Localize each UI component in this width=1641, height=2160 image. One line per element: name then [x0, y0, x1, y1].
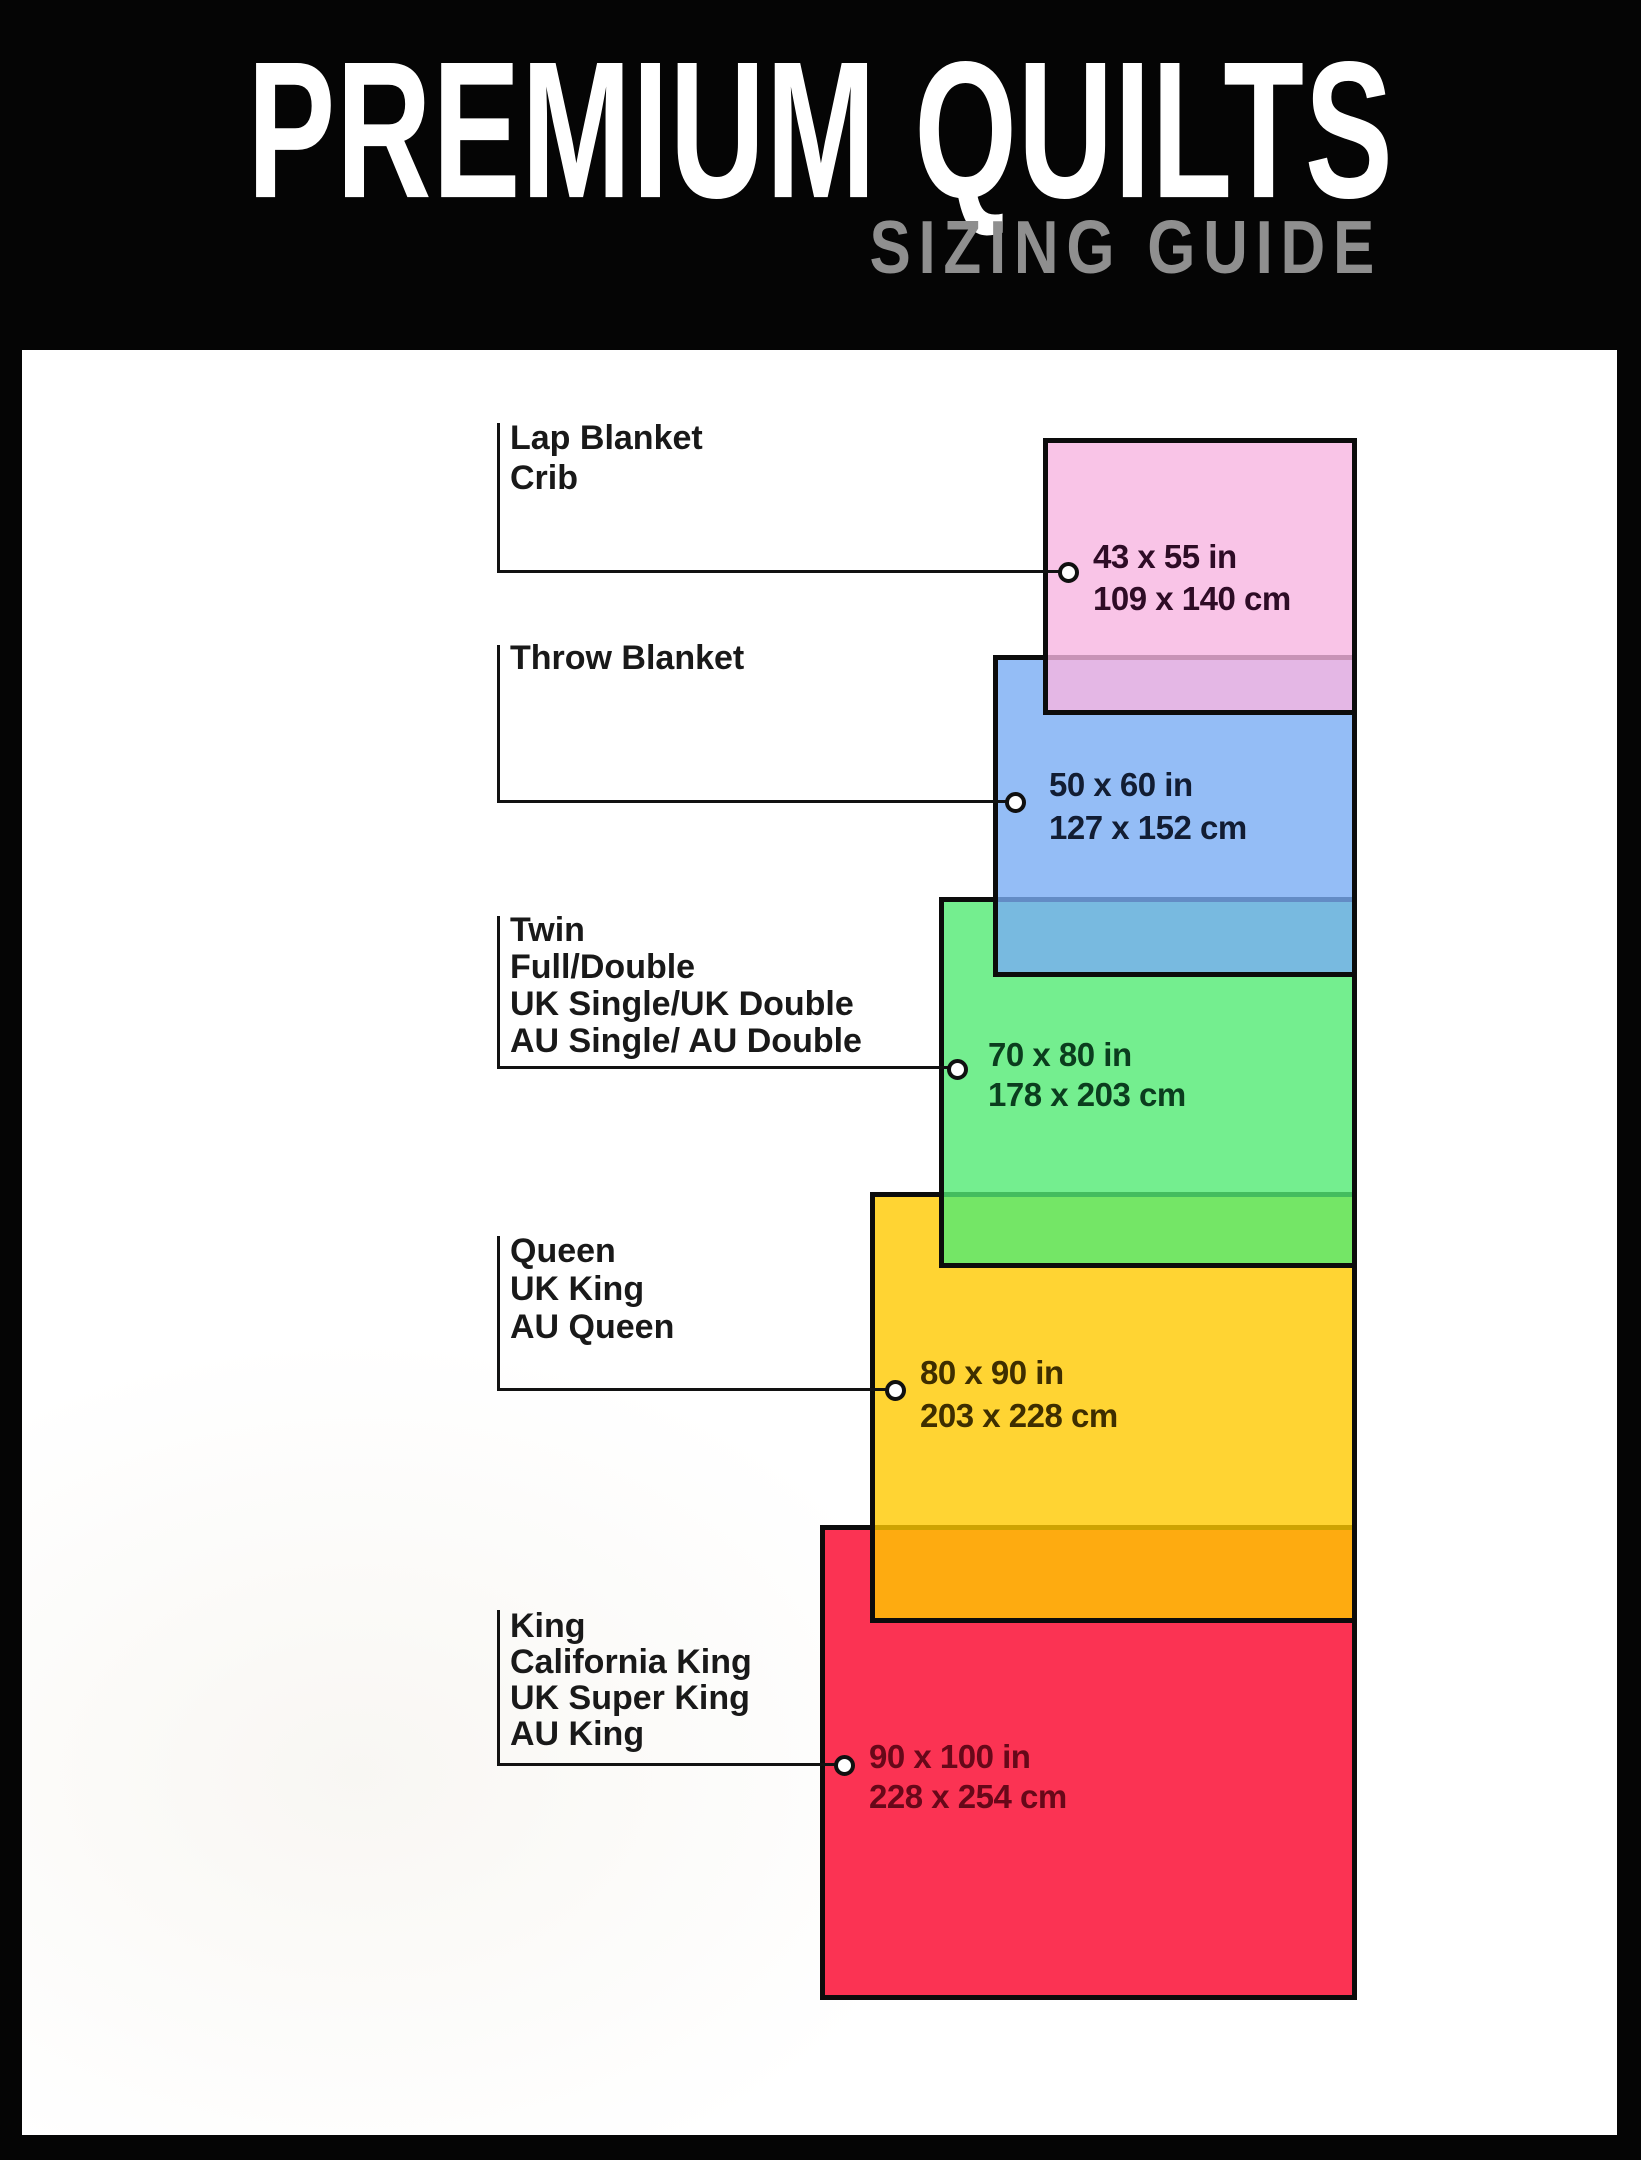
measurement-imperial-queen: 80 x 90 in: [920, 1355, 1064, 1391]
size-label-line: UK Single/UK Double: [510, 986, 862, 1023]
leader-line-twin-vertical: [497, 916, 500, 1069]
leader-dot-queen: [885, 1380, 906, 1401]
leader-line-lap-horizontal: [497, 570, 1068, 573]
measurement-metric-king: 228 x 254 cm: [869, 1779, 1067, 1815]
size-label-line: Twin: [510, 912, 862, 949]
measurement-imperial-king: 90 x 100 in: [869, 1739, 1030, 1775]
leader-line-queen-horizontal: [497, 1388, 895, 1391]
measurement-metric-twin: 178 x 203 cm: [988, 1077, 1186, 1113]
leader-line-twin-horizontal: [497, 1066, 957, 1069]
size-label-twin: Twin Full/Double UK Single/UK Double AU …: [510, 912, 862, 1060]
leader-line-king-horizontal: [497, 1763, 844, 1766]
measurement-imperial-twin: 70 x 80 in: [988, 1037, 1132, 1073]
leader-dot-throw: [1005, 792, 1026, 813]
size-label-line: King: [510, 1608, 752, 1644]
size-label-line: Queen: [510, 1232, 674, 1270]
size-label-line: AU Single/ AU Double: [510, 1023, 862, 1060]
leader-dot-king: [834, 1755, 855, 1776]
measurement-imperial-lap: 43 x 55 in: [1093, 539, 1237, 575]
header: PREMIUM QUILTS SIZING GUIDE: [0, 0, 1641, 350]
size-label-line: California King: [510, 1644, 752, 1680]
size-label-line: AU Queen: [510, 1308, 674, 1346]
size-label-lap: Lap Blanket Crib: [510, 418, 703, 498]
size-label-king: King California King UK Super King AU Ki…: [510, 1608, 752, 1752]
leader-line-throw-horizontal: [497, 800, 1015, 803]
leader-line-king-vertical: [497, 1610, 500, 1766]
measurement-metric-lap: 109 x 140 cm: [1093, 581, 1291, 617]
leader-line-queen-vertical: [497, 1236, 500, 1391]
size-label-line: Throw Blanket: [510, 638, 744, 678]
page-title: PREMIUM QUILTS: [98, 32, 1542, 227]
measurement-metric-queen: 203 x 228 cm: [920, 1398, 1118, 1434]
leader-line-throw-vertical: [497, 645, 500, 803]
diagram-canvas: Lap Blanket Crib Throw Blanket Twin Full…: [22, 350, 1617, 2135]
size-label-line: Lap Blanket: [510, 418, 703, 458]
measurement-imperial-throw: 50 x 60 in: [1049, 767, 1193, 803]
size-label-line: Crib: [510, 458, 703, 498]
measurement-metric-throw: 127 x 152 cm: [1049, 810, 1247, 846]
leader-line-lap-vertical: [497, 423, 500, 573]
size-label-line: UK Super King: [510, 1680, 752, 1716]
size-label-throw: Throw Blanket: [510, 638, 744, 678]
size-label-line: AU King: [510, 1716, 752, 1752]
leader-dot-lap: [1058, 562, 1079, 583]
leader-dot-twin: [947, 1059, 968, 1080]
size-label-line: UK King: [510, 1270, 674, 1308]
size-rect-lap: [1043, 438, 1357, 715]
infographic-page: PREMIUM QUILTS SIZING GUIDE Lap Blanket …: [0, 0, 1641, 2160]
page-subtitle: SIZING GUIDE: [869, 210, 1382, 286]
size-label-queen: Queen UK King AU Queen: [510, 1232, 674, 1346]
size-label-line: Full/Double: [510, 949, 862, 986]
